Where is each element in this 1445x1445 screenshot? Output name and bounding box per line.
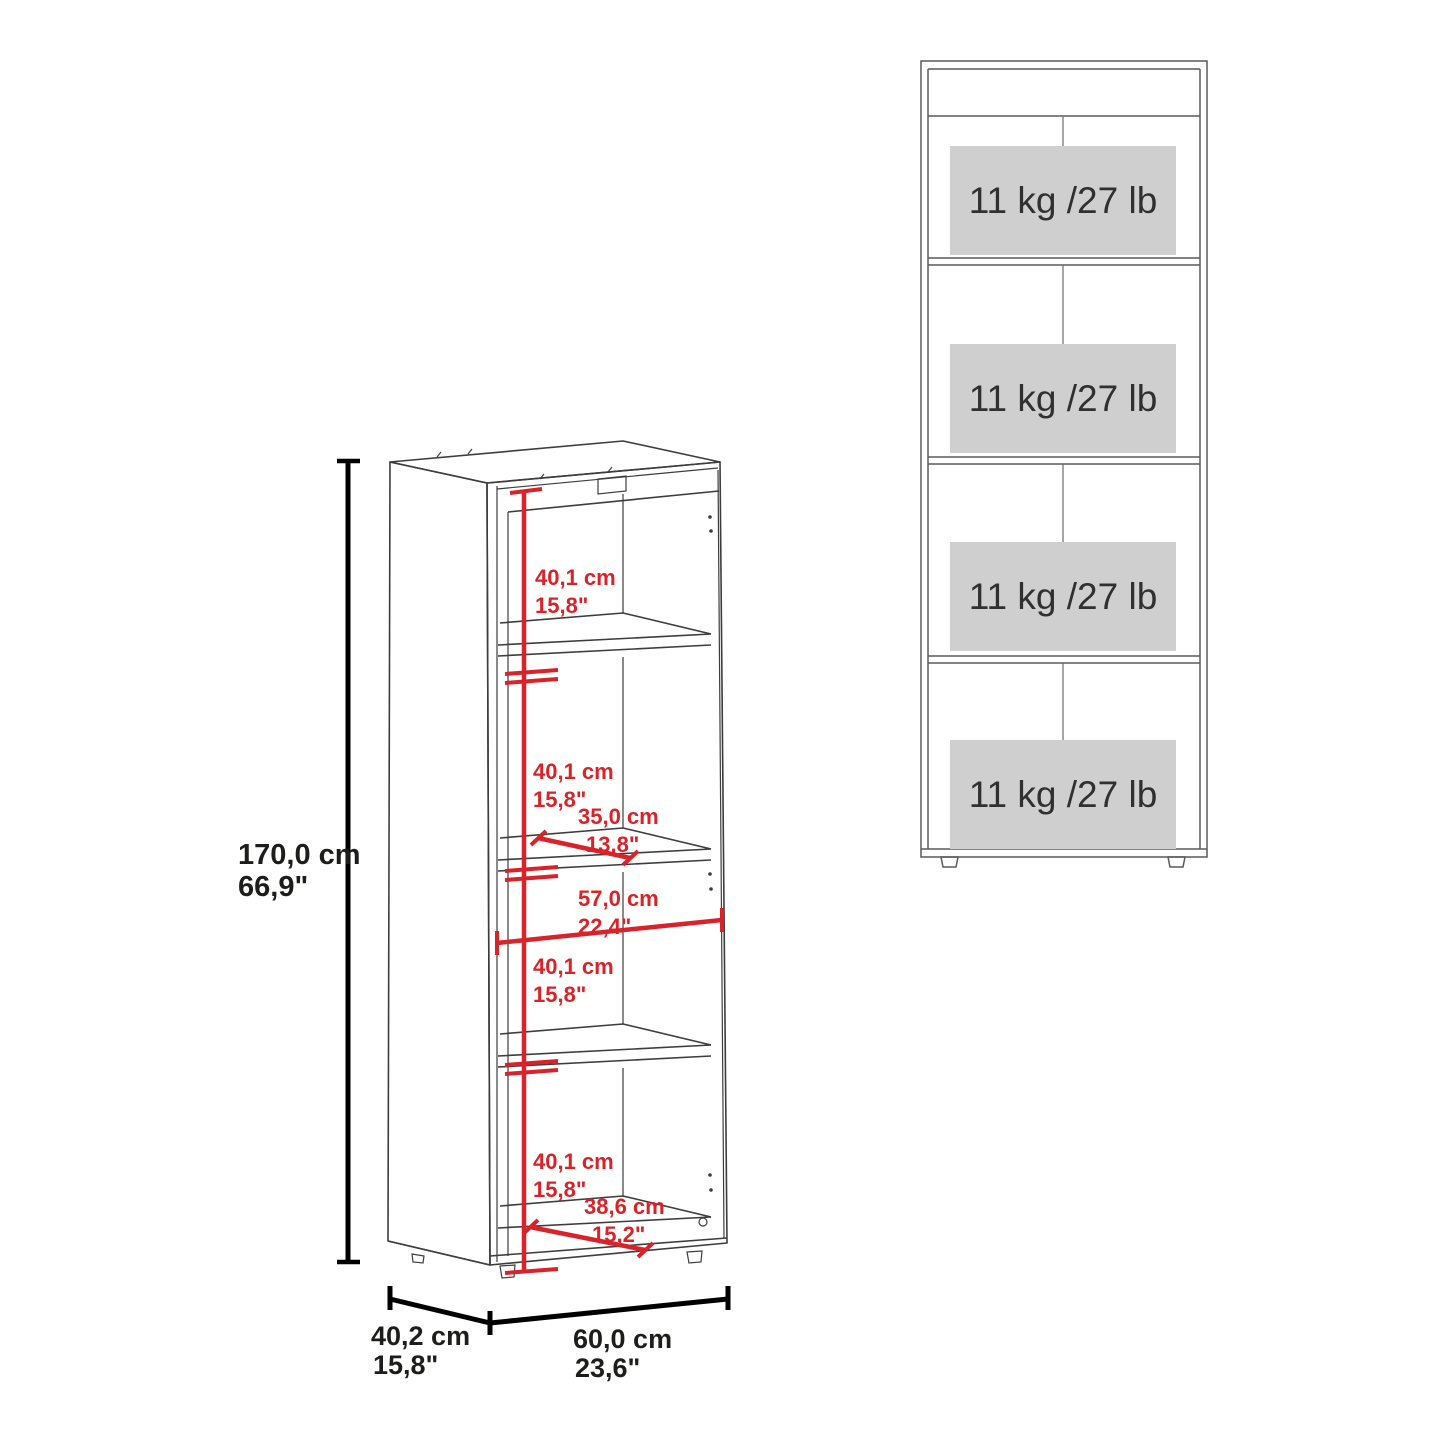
shelf-3-front-top [498, 1045, 711, 1056]
compartment-4-cm: 40,1 cm [533, 1149, 614, 1174]
width-value-inch: 23,6" [575, 1353, 640, 1383]
compartment-1-cm: 40,1 cm [535, 565, 616, 590]
front-view-shelf-1 [928, 258, 1200, 265]
interior-width-dimension: 57,0 cm 22,4" [497, 886, 722, 955]
load-value: 11 kg /27 lb [969, 378, 1158, 419]
product-dimension-diagram: 170,0 cm 66,9" 40,2 cm 15,8" 60,0 cm 23,… [0, 0, 1445, 1445]
width-value-cm: 60,0 cm [573, 1324, 672, 1354]
compartment-2-cm: 40,1 cm [533, 759, 614, 784]
width-dimension-line [490, 1299, 728, 1323]
base-depth-cm: 38,6 cm [584, 1194, 665, 1219]
shelf-load-label-4: 11 kg /27 lb [950, 740, 1176, 849]
pin-hole [708, 1173, 712, 1177]
perspective-view: 170,0 cm 66,9" 40,2 cm 15,8" 60,0 cm 23,… [238, 441, 728, 1383]
shelf-load-label-1: 11 kg /27 lb [950, 146, 1176, 255]
shelf-depth-cm: 35,0 cm [578, 804, 659, 829]
compartment-3-inch: 15,8" [533, 982, 586, 1007]
shelf-load-label-2: 11 kg /27 lb [950, 344, 1176, 453]
shelf-1-front-top [498, 634, 711, 645]
shelf-1 [498, 613, 711, 656]
pin-hole [708, 515, 712, 519]
shelf-depth-inch: 13,8" [586, 832, 639, 857]
depth-dimension: 40,2 cm 15,8" [371, 1286, 490, 1380]
compartment-1-inch: 15,8" [535, 593, 588, 618]
compartment-dimension-chain: 40,1 cm 15,8" 40,1 cm 15,8" 40,1 cm 15,8… [505, 489, 616, 1273]
depth-value-cm: 40,2 cm [371, 1321, 470, 1351]
compartment-4-inch: 15,8" [533, 1177, 586, 1202]
interior-width-inch: 22,4" [578, 914, 631, 939]
load-value: 11 kg /27 lb [969, 774, 1158, 815]
shelf-1-back-edge [500, 613, 711, 634]
shelf-3 [498, 1024, 711, 1067]
pin-hole [708, 872, 712, 876]
red-tick-top [510, 489, 542, 493]
left-panel-bottom-edge [388, 1241, 490, 1265]
foot-front-right [687, 1251, 702, 1263]
front-view: 11 kg /27 lb 11 kg /27 lb 11 kg /27 lb 1… [921, 61, 1207, 867]
interior-width-cm: 57,0 cm [578, 886, 659, 911]
red-tick-shelf-3 [505, 1061, 558, 1074]
front-view-foot-right [1168, 857, 1185, 867]
diagram-svg: 170,0 cm 66,9" 40,2 cm 15,8" 60,0 cm 23,… [0, 0, 1445, 1445]
width-dimension: 60,0 cm 23,6" [490, 1286, 728, 1383]
red-tick-bottom [505, 1269, 558, 1273]
shelf-1-front-bottom [498, 645, 711, 656]
height-dimension: 170,0 cm 66,9" [238, 461, 361, 1262]
shelf-load-label-3: 11 kg /27 lb [950, 542, 1176, 651]
load-value: 11 kg /27 lb [969, 576, 1158, 617]
pin-hole [709, 887, 713, 891]
top-rail-bottom-edge [508, 491, 719, 512]
front-view-foot-left [941, 857, 958, 867]
cam-lock-hole [699, 1218, 707, 1226]
foot-back-left [412, 1254, 424, 1263]
compartment-3-cm: 40,1 cm [533, 954, 614, 979]
height-value-cm: 170,0 cm [238, 839, 361, 871]
shelf-3-back-edge [500, 1024, 711, 1045]
pin-hole [709, 529, 713, 533]
red-tick-shelf-2 [505, 867, 558, 880]
height-value-inch: 66,9" [238, 871, 308, 903]
base-depth-inch: 15,2" [592, 1222, 645, 1247]
depth-dimension-line [390, 1299, 490, 1323]
cabinet-left-panel [388, 462, 490, 1265]
back-top-rail [598, 476, 626, 494]
front-view-shelf-2 [928, 457, 1200, 464]
pin-hole [709, 1188, 713, 1192]
depth-value-inch: 15,8" [373, 1350, 438, 1380]
red-tick-shelf-1 [505, 670, 558, 683]
load-value: 11 kg /27 lb [969, 180, 1158, 221]
front-view-shelf-3 [928, 656, 1200, 663]
